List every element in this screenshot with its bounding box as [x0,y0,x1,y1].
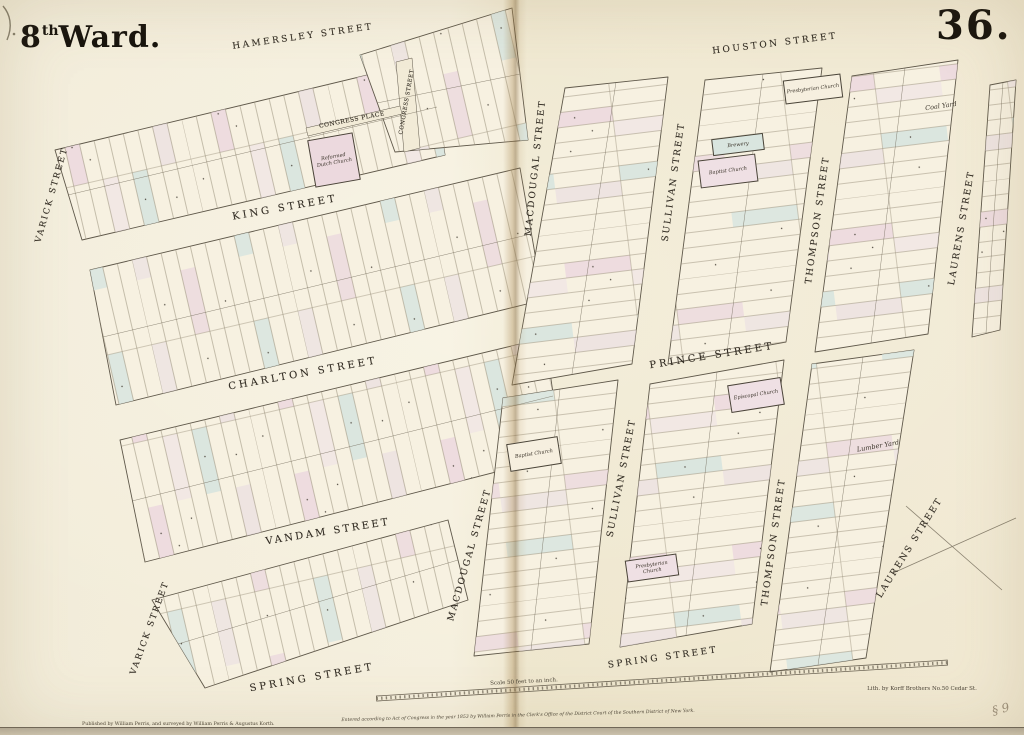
ward-word: Ward. [59,20,162,55]
ward-title: 8thWard. [20,20,161,55]
map-sheet: 8thWard. 36. HAMERSLEY STREET HOUSTON ST… [0,0,1024,735]
page-bottom-edge [0,727,1024,735]
ward-number: 8 [20,20,42,55]
ward-suffix: th [42,23,59,39]
scale-bar [376,660,947,701]
plate-number: 36. [936,2,1012,49]
paper-flaw [3,6,15,40]
building-label-reformed-dutch-church: Reformed Dutch Church [307,132,361,187]
lithographer-line: Lith. by Korff Brothers No.50 Cedar St. [867,686,977,692]
